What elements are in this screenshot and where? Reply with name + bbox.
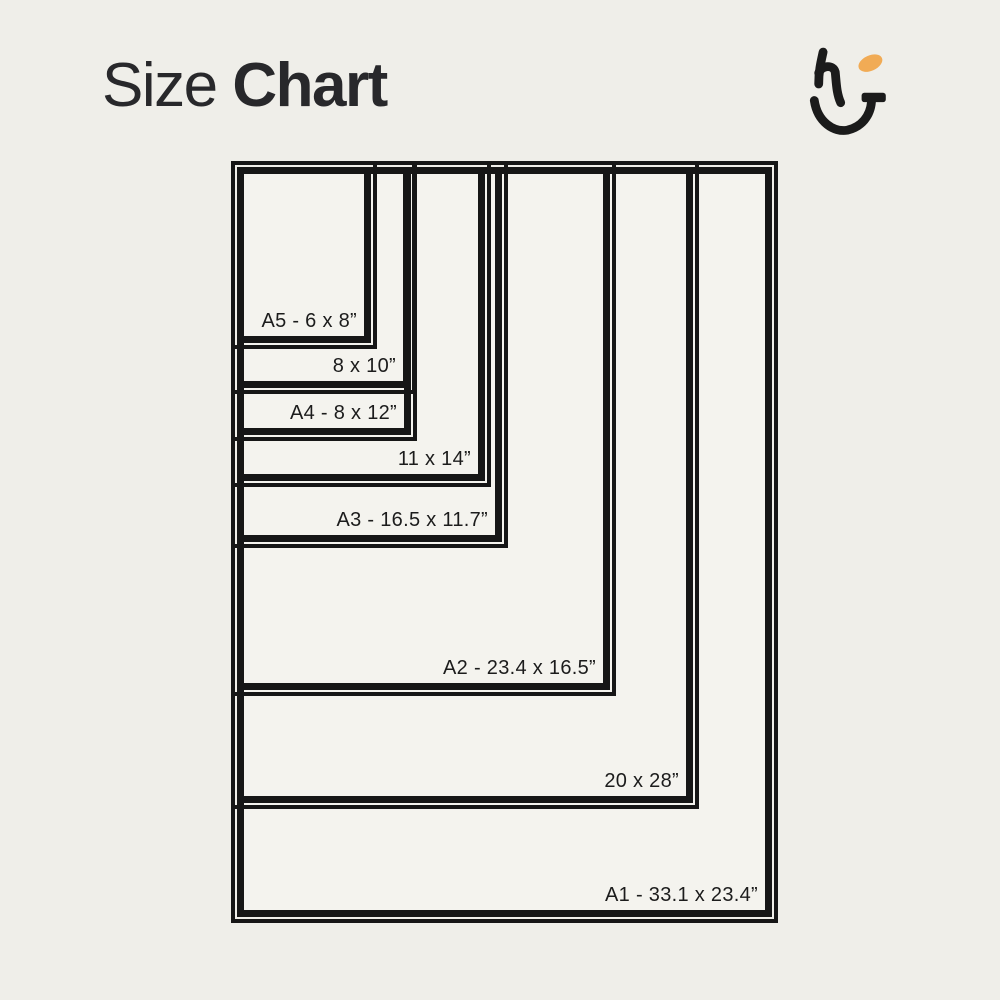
title-bold-part: Chart: [232, 51, 386, 120]
size-rect-a5: A5 - 6 x 8”: [237, 167, 371, 343]
hj-monogram-logo: [800, 40, 910, 150]
title-regular-part: Size: [102, 51, 217, 120]
size-label-a4: A4 - 8 x 12”: [290, 402, 397, 425]
size-label-a5: A5 - 6 x 8”: [261, 310, 357, 333]
size-label-a3: A3 - 16.5 x 11.7”: [337, 509, 488, 532]
page-title: Size Chart: [102, 52, 387, 120]
size-label-11x14: 11 x 14”: [398, 448, 471, 471]
logo-accent-dot: [856, 51, 885, 75]
title-space: [217, 51, 233, 120]
size-label-a1: A1 - 33.1 x 23.4”: [605, 884, 758, 907]
size-label-a2: A2 - 23.4 x 16.5”: [443, 657, 596, 680]
size-label-20x28: 20 x 28”: [604, 770, 679, 793]
logo-top-bar: [862, 93, 886, 102]
size-label-8x10: 8 x 10”: [333, 355, 396, 378]
